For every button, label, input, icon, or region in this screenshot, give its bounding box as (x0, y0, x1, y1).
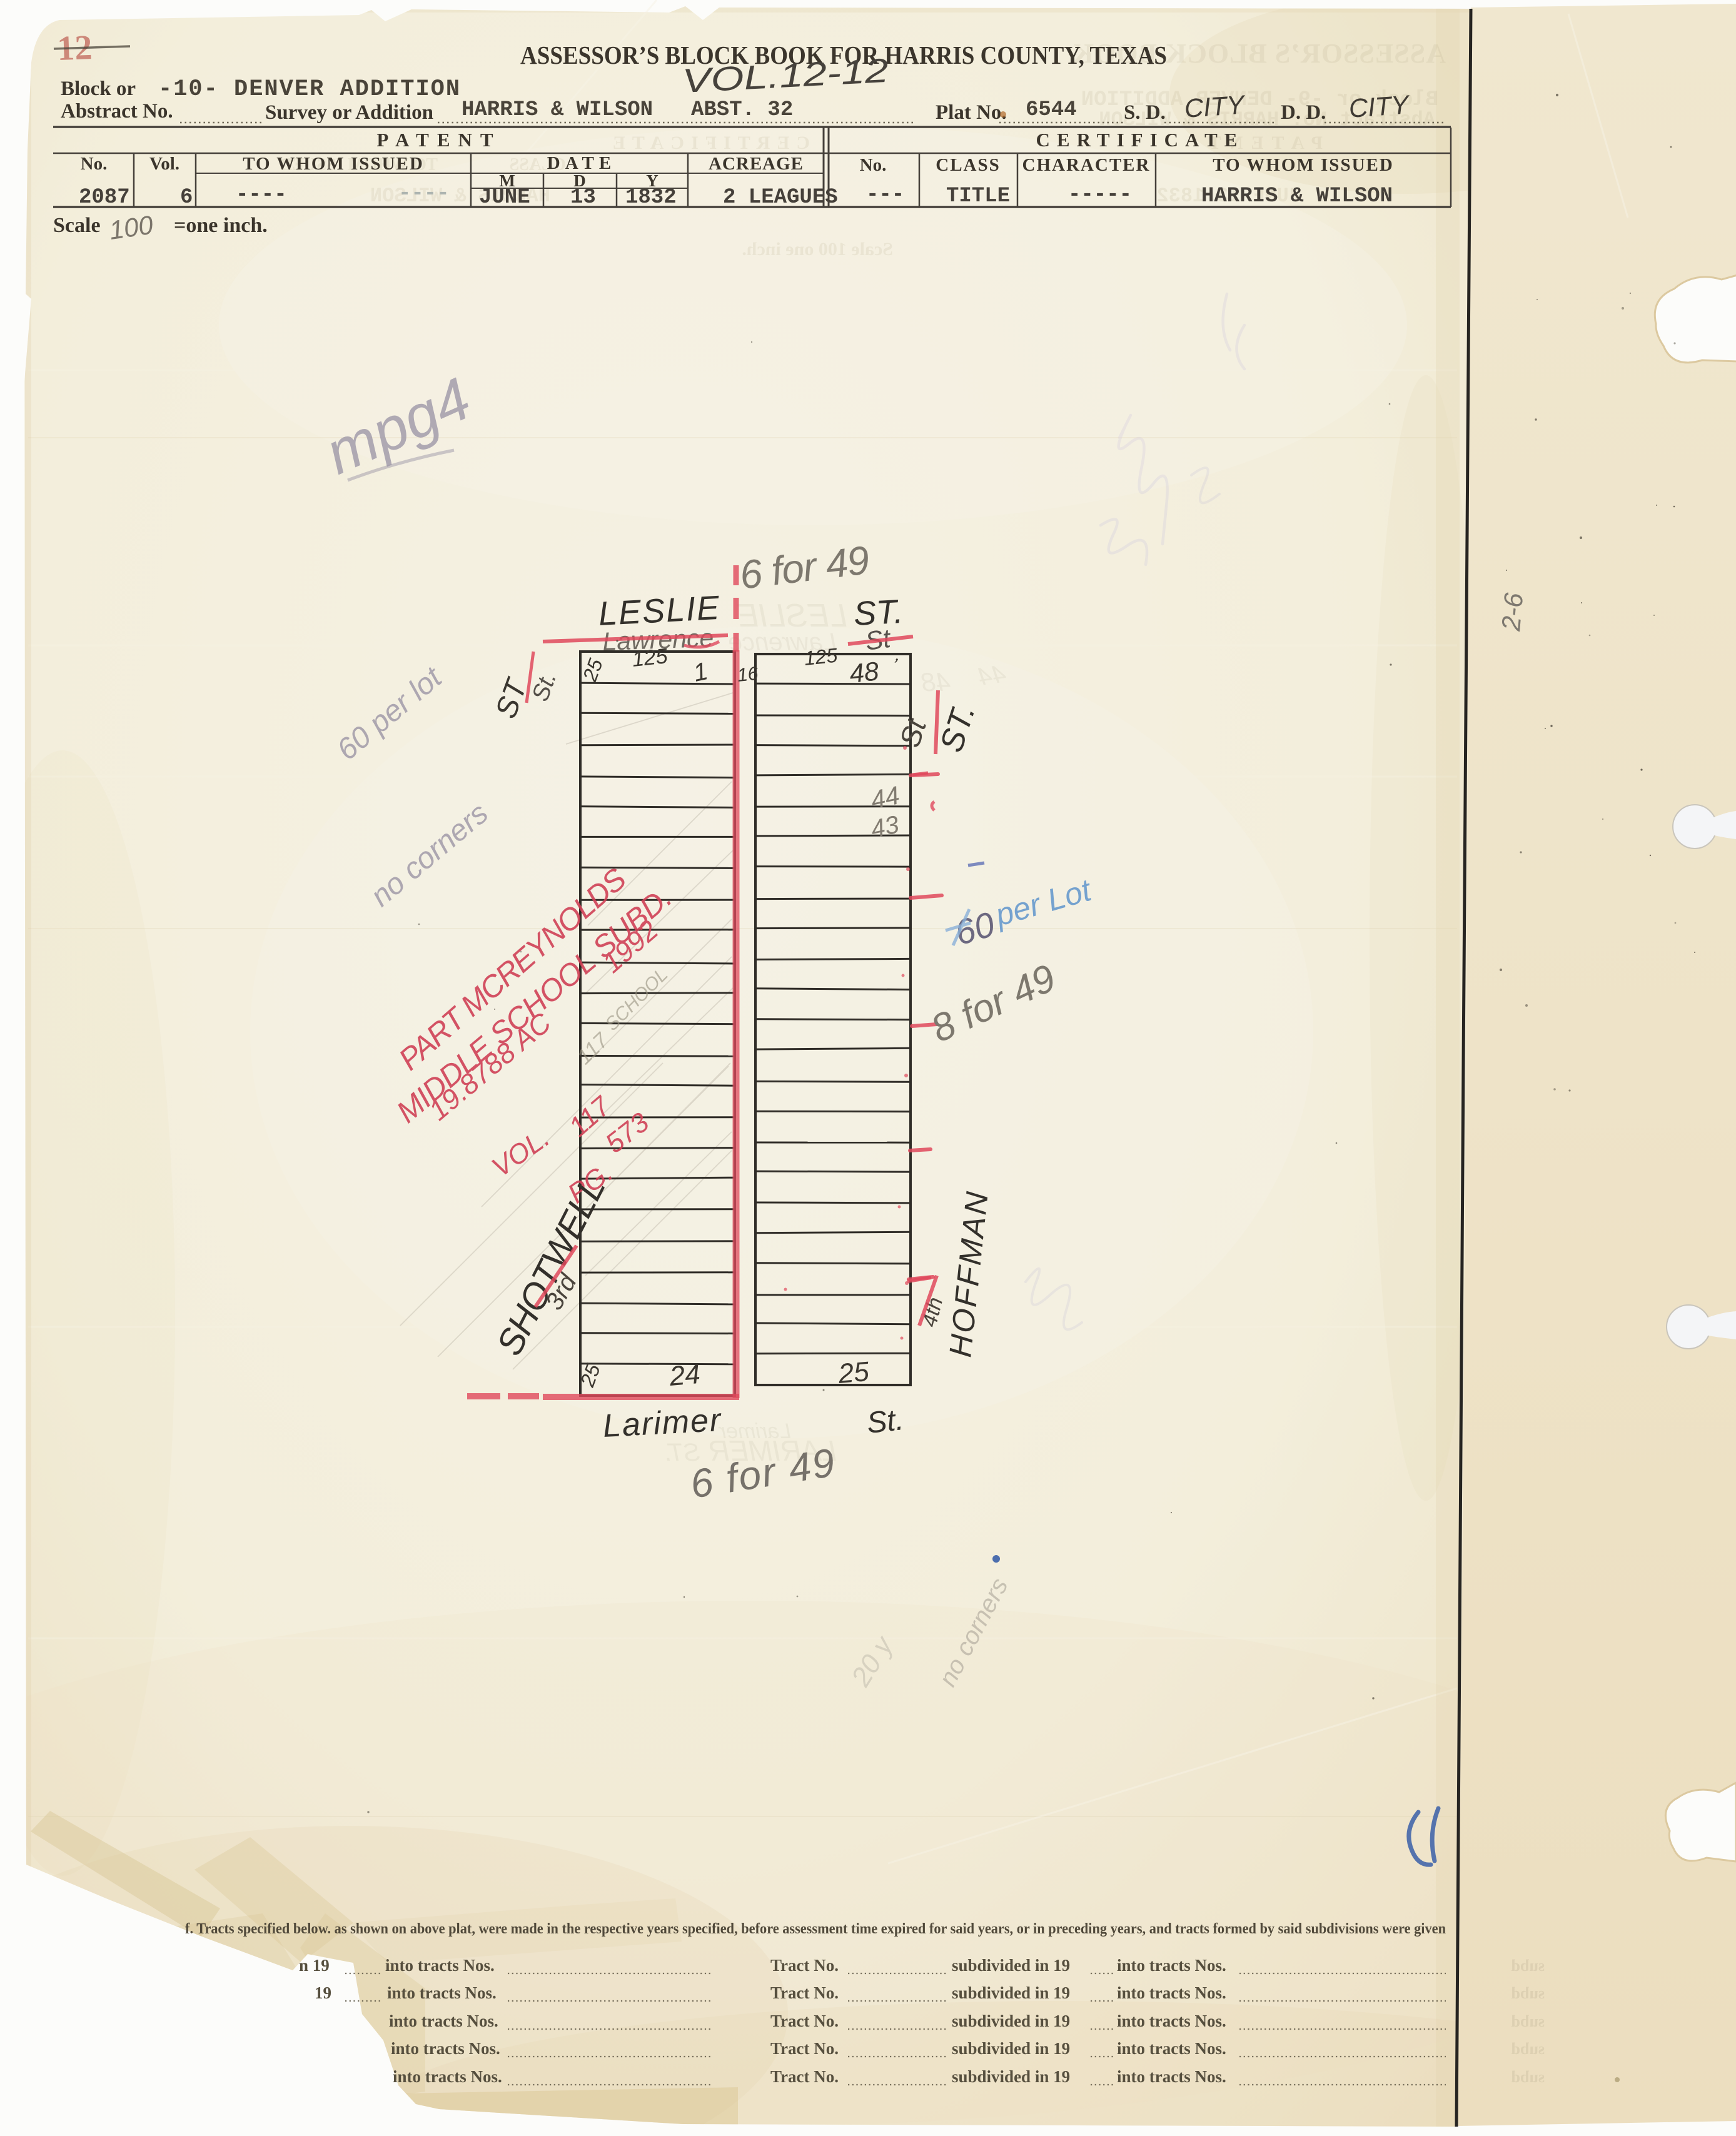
svg-text:1832: 1832 (625, 186, 677, 209)
svg-text:subd: subd (1511, 2012, 1545, 2030)
svg-text:Scale: Scale (53, 214, 101, 237)
svg-text:TO WHOM ISSUED: TO WHOM ISSUED (1213, 155, 1394, 175)
svg-text:CERTIFICATE: CERTIFICATE (1036, 129, 1244, 151)
svg-text:CLASS: CLASS (936, 155, 1001, 175)
svg-text:6: 6 (180, 186, 193, 209)
svg-text:16: 16 (736, 663, 759, 686)
svg-text:subd: subd (1511, 1957, 1545, 1975)
svg-text:48: 48 (921, 667, 951, 697)
svg-text:CITY: CITY (1183, 89, 1247, 123)
svg-text:-10- DENVER ADDITION: -10- DENVER ADDITION (158, 76, 461, 103)
svg-text:Tract No.: Tract No. (770, 2039, 839, 2058)
svg-text:=one inch.: =one inch. (174, 214, 268, 237)
svg-text:HARRIS & WILSON: HARRIS & WILSON (1201, 184, 1393, 208)
svg-text:No.: No. (81, 154, 108, 174)
svg-text:subd: subd (1511, 2040, 1545, 2058)
svg-text:6544: 6544 (1026, 98, 1077, 122)
svg-text:TITLE: TITLE (946, 184, 1010, 208)
svg-text:JUNE: JUNE (479, 186, 530, 209)
svg-text:Tract No.: Tract No. (770, 2067, 839, 2086)
svg-text:subd: subd (1511, 1984, 1545, 2002)
svg-text:n 19: n 19 (299, 1956, 330, 1975)
svg-text:subdivided in 19: subdivided in 19 (952, 2039, 1070, 2058)
svg-text:Abstract No.: Abstract No. (61, 100, 173, 123)
svg-text:TO WHOM ISSUED: TO WHOM ISSUED (243, 154, 424, 174)
svg-text:into tracts Nos.: into tracts Nos. (385, 1956, 495, 1975)
svg-text:into tracts Nos.: into tracts Nos. (1117, 2067, 1226, 2086)
svg-text:Tract No.: Tract No. (770, 1983, 839, 2002)
svg-text:CHARACTER: CHARACTER (1022, 155, 1151, 175)
svg-text:ABST. 32: ABST. 32 (691, 98, 793, 122)
svg-text:into tracts Nos.: into tracts Nos. (393, 2067, 502, 2086)
svg-text:13: 13 (570, 186, 596, 209)
svg-text:---: --- (866, 183, 904, 207)
svg-text:----: ---- (398, 182, 450, 206)
svg-text:Block or: Block or (61, 78, 136, 100)
svg-text:into tracts Nos.: into tracts Nos. (1117, 2039, 1226, 2058)
svg-text:f. Tracts specified below. as: f. Tracts specified below. as shown on a… (185, 1921, 1446, 1937)
svg-text:S. D.: S. D. (1124, 101, 1166, 124)
svg-text:Survey or Addition: Survey or Addition (265, 101, 433, 124)
svg-text:Tract No.: Tract No. (770, 2012, 839, 2030)
svg-text:subdivided in 19: subdivided in 19 (952, 2012, 1070, 2030)
svg-text:DATE: DATE (547, 153, 616, 173)
svg-text:-----: ----- (1068, 183, 1132, 207)
svg-text:into tracts Nos.: into tracts Nos. (1117, 2012, 1226, 2030)
svg-text:into tracts Nos.: into tracts Nos. (387, 1983, 497, 2002)
svg-text:into tracts Nos.: into tracts Nos. (389, 2012, 498, 2030)
svg-text:CERTIFICATE: CERTIFICATE (606, 133, 810, 153)
svg-text:125: 125 (803, 644, 839, 670)
svg-text:CITY: CITY (1348, 89, 1411, 123)
svg-text:19: 19 (315, 1983, 331, 2002)
svg-text:Larimer: Larimer (602, 1402, 724, 1444)
svg-text:2-6: 2-6 (1496, 592, 1528, 633)
svg-text:subd: subd (1511, 2068, 1545, 2086)
svg-text:into tracts Nos.: into tracts Nos. (1117, 1983, 1226, 2002)
svg-text:48: 48 (848, 656, 881, 688)
svg-text:subdivided in 19: subdivided in 19 (952, 1983, 1070, 2002)
svg-text:ACREAGE: ACREAGE (709, 154, 804, 174)
svg-text:Tract No.: Tract No. (770, 1956, 839, 1975)
svg-text:44: 44 (976, 660, 1007, 691)
svg-text:into tracts Nos.: into tracts Nos. (391, 2039, 500, 2058)
svg-text:subdivided in 19: subdivided in 19 (952, 2067, 1070, 2086)
svg-text:into tracts Nos.: into tracts Nos. (1117, 1956, 1226, 1975)
svg-text:44: 44 (868, 780, 902, 814)
svg-text:D. D.: D. D. (1281, 101, 1326, 124)
svg-text:PATENT: PATENT (376, 129, 501, 151)
svg-text:100: 100 (108, 210, 156, 245)
svg-text:2 LEAGUES: 2 LEAGUES (723, 186, 838, 209)
svg-text:subdivided in 19: subdivided in 19 (952, 1956, 1070, 1975)
svg-text:Vol.: Vol. (149, 154, 179, 174)
svg-text:43: 43 (869, 811, 902, 844)
svg-text:25: 25 (837, 1356, 871, 1389)
svg-text:Plat No.: Plat No. (936, 101, 1007, 124)
svg-text:Larimer: Larimer (718, 1419, 791, 1443)
svg-text:Scale 100 one inch.: Scale 100 one inch. (742, 239, 893, 259)
svg-text:2087: 2087 (79, 186, 130, 209)
svg-text:HARRIS & WILSON: HARRIS & WILSON (462, 98, 653, 122)
svg-text:24: 24 (668, 1359, 702, 1392)
svg-text:----: ---- (236, 183, 287, 207)
svg-text:No.: No. (860, 155, 887, 175)
svg-text:St.: St. (865, 1403, 906, 1440)
